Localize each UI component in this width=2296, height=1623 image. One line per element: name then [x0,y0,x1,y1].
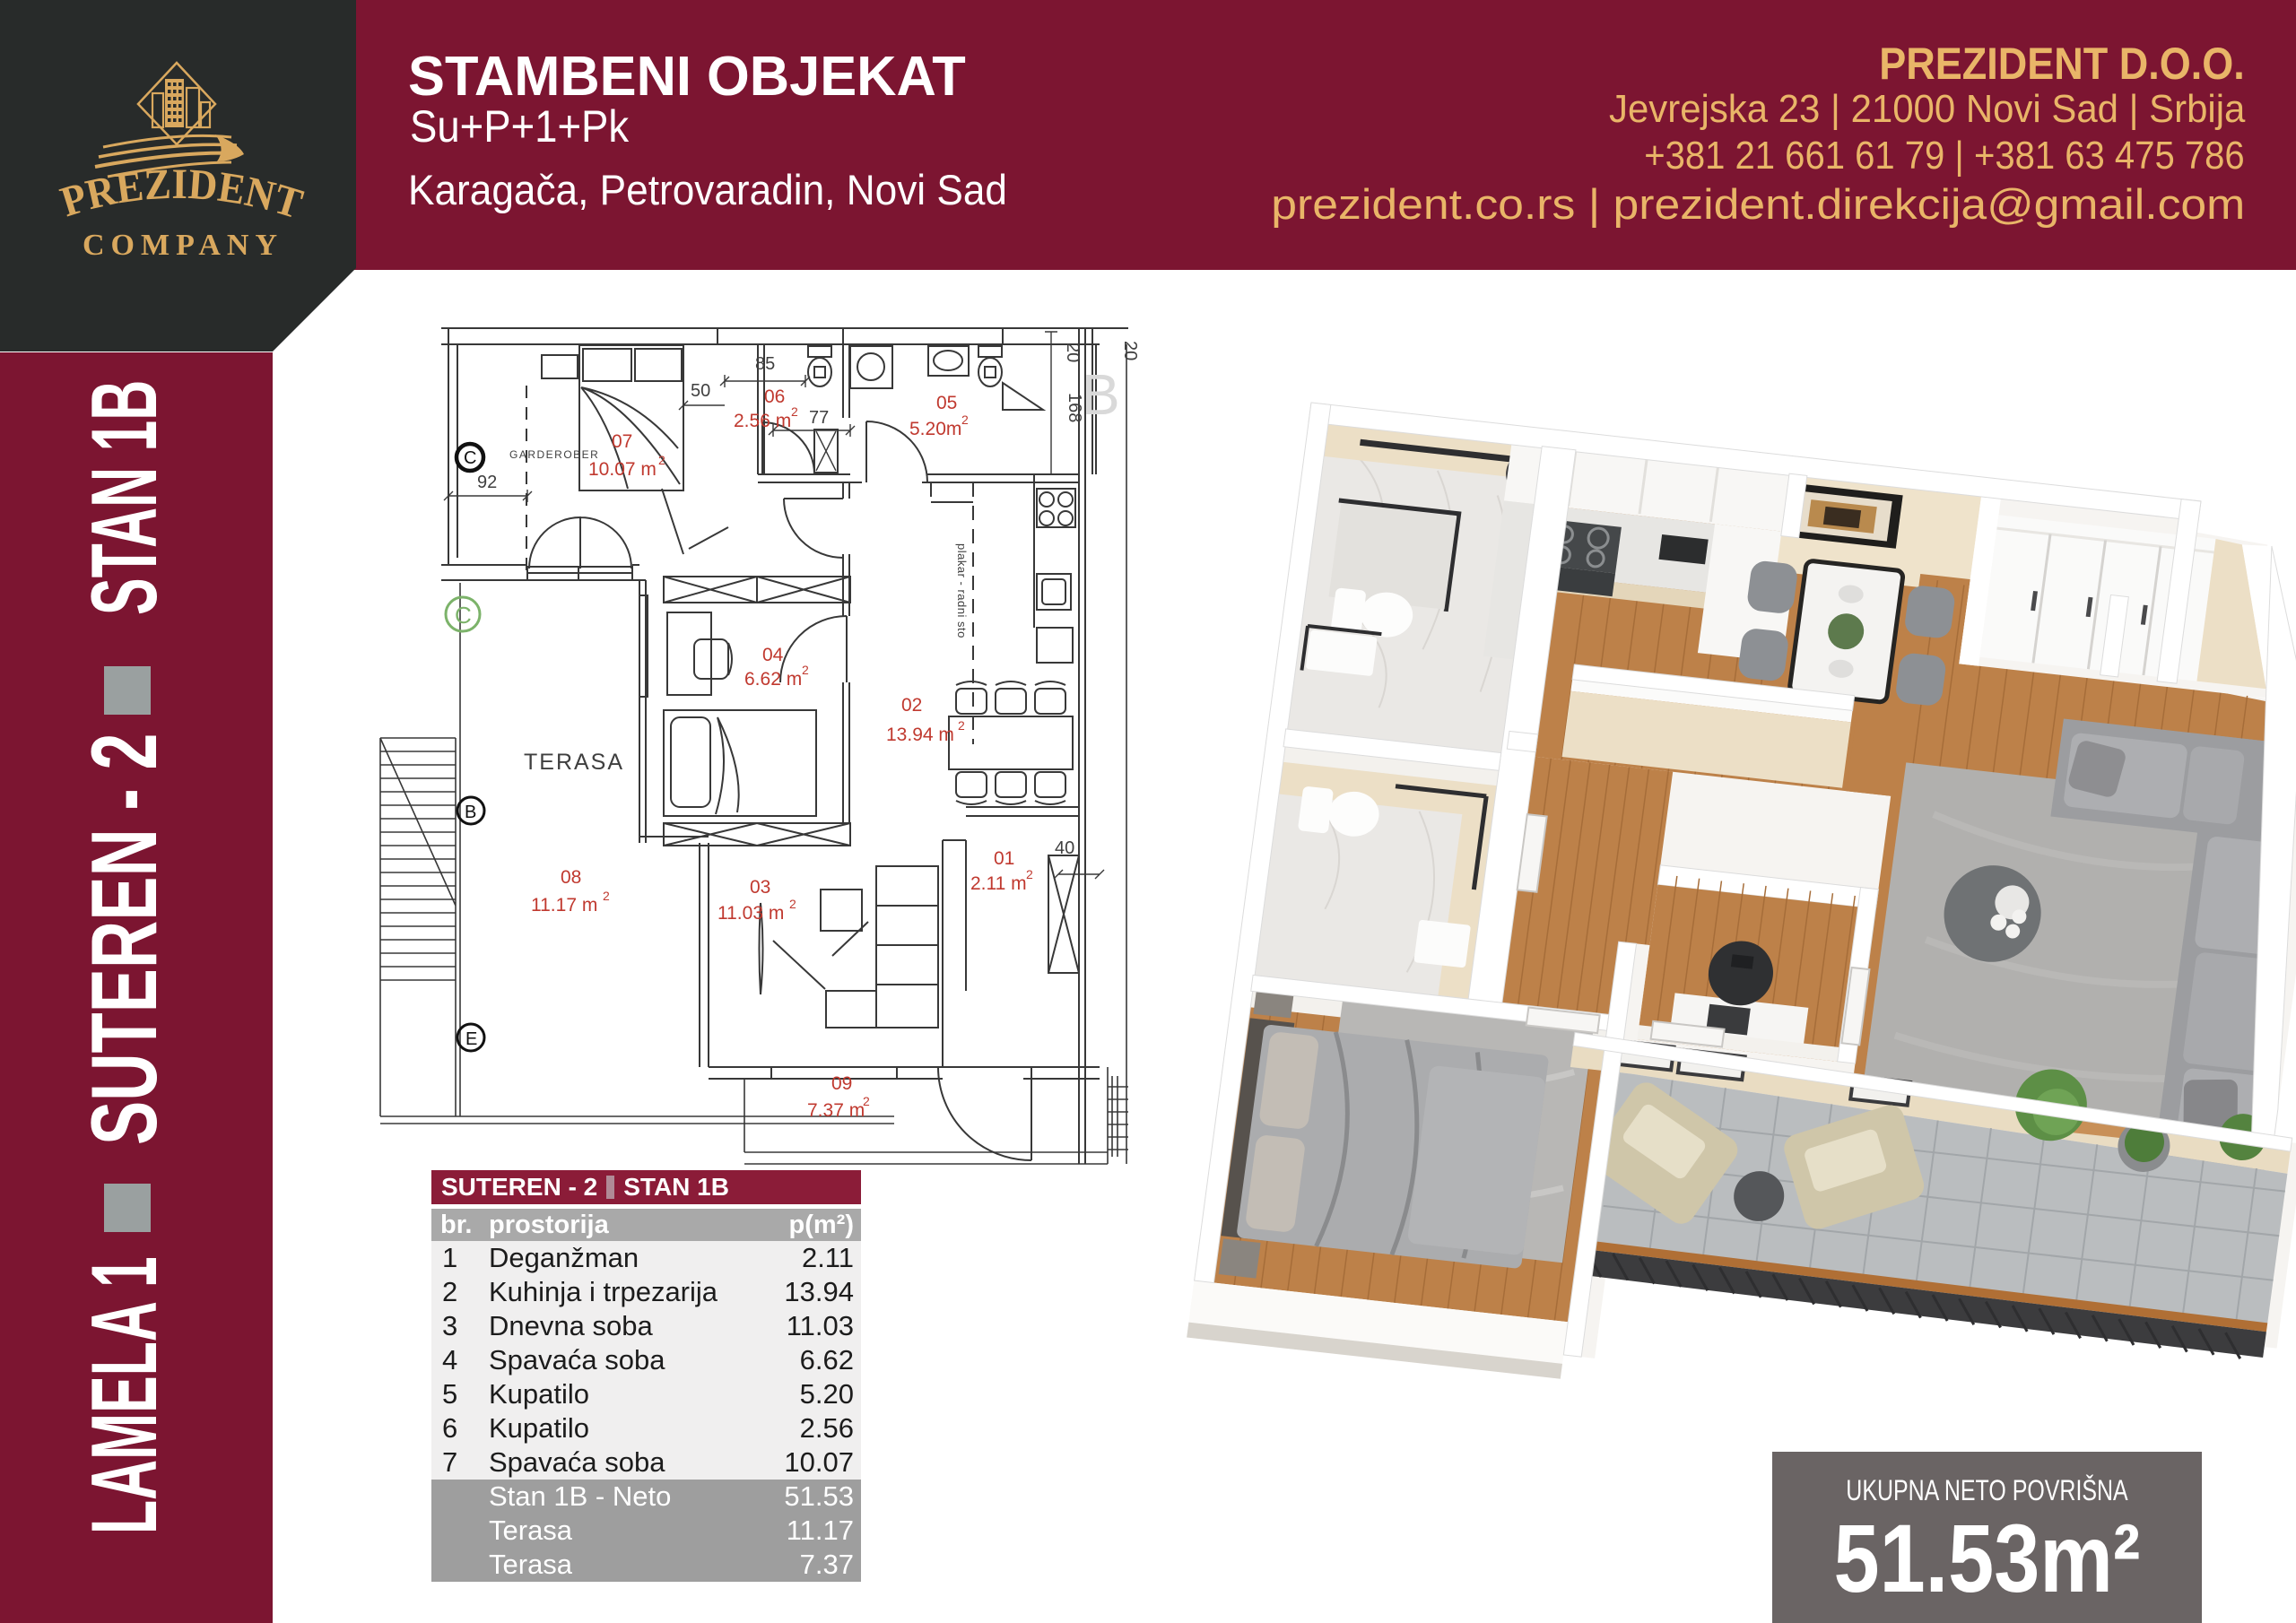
svg-text:20: 20 [1120,341,1139,360]
svg-text:04: 04 [762,645,784,665]
svg-text:STAN 1B: STAN 1B [73,380,177,615]
svg-text:2: 2 [603,889,610,903]
svg-text:08: 08 [561,867,581,888]
svg-text:2: 2 [791,404,798,419]
svg-text:09: 09 [831,1073,852,1094]
svg-text:11.17 m: 11.17 m [531,895,597,916]
svg-text:40: 40 [1055,838,1074,858]
svg-text:SUTEREN - 2: SUTEREN - 2 [73,733,177,1145]
svg-text:TERASA: TERASA [524,750,624,775]
svg-text:2.56 m: 2.56 m [734,411,791,431]
svg-text:11.03 m: 11.03 m [717,903,784,924]
svg-text:GARDEROBER: GARDEROBER [509,448,599,461]
svg-text:05: 05 [936,393,957,413]
svg-text:07: 07 [612,431,632,452]
svg-text:plakar - radni sto: plakar - radni sto [955,543,969,638]
svg-text:C: C [464,448,476,468]
svg-text:06: 06 [764,386,785,407]
svg-text:5.20m: 5.20m [909,419,961,439]
svg-text:50: 50 [691,381,710,401]
svg-text:85: 85 [755,354,775,374]
svg-text:77: 77 [809,408,829,428]
svg-text:E: E [465,1029,477,1049]
svg-text:7.37 m: 7.37 m [807,1100,865,1121]
svg-text:2: 2 [1026,867,1033,881]
svg-text:92: 92 [477,473,497,492]
svg-text:01: 01 [994,848,1014,869]
svg-text:2: 2 [961,412,969,427]
svg-text:2: 2 [802,663,809,677]
svg-text:2: 2 [658,453,665,467]
svg-text:COMPANY: COMPANY [83,229,283,262]
svg-text:10.07 m: 10.07 m [588,459,657,480]
svg-text:6.62 m: 6.62 m [744,669,802,690]
svg-text:2.11 m: 2.11 m [970,873,1027,894]
svg-text:02: 02 [901,695,922,716]
svg-text:B: B [1082,362,1120,427]
svg-text:C: C [455,602,472,629]
svg-text:LAMELA 1: LAMELA 1 [73,1256,177,1534]
svg-text:2: 2 [789,897,796,911]
svg-text:2: 2 [863,1094,870,1108]
svg-text:13.94 m: 13.94 m [886,725,954,745]
svg-text:03: 03 [750,877,770,898]
svg-text:B: B [465,803,476,822]
svg-text:20: 20 [1063,343,1083,362]
svg-text:2: 2 [958,718,965,733]
